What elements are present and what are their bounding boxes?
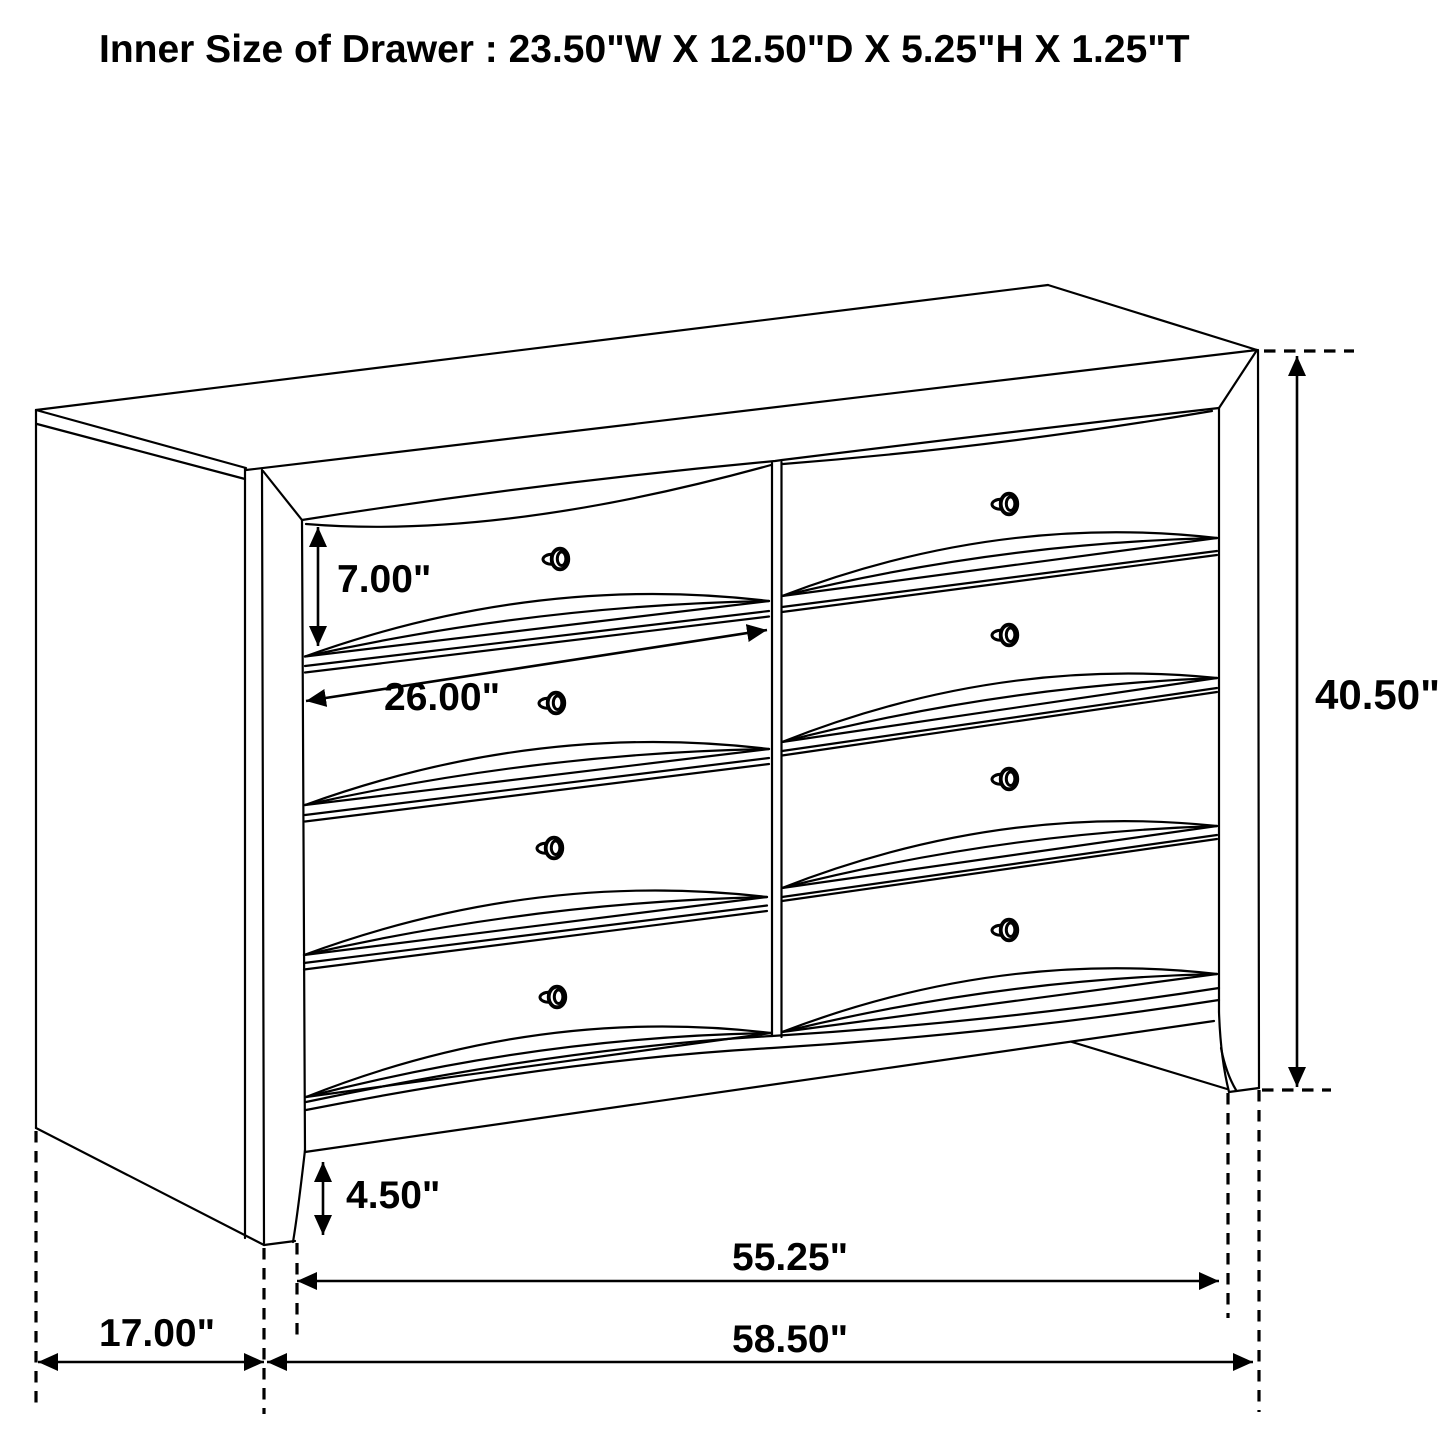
svg-text:17.00": 17.00" (99, 1312, 215, 1355)
svg-text:26.00": 26.00" (384, 676, 500, 719)
svg-text:58.50": 58.50" (732, 1318, 848, 1361)
svg-text:7.00": 7.00" (337, 558, 431, 601)
svg-text:55.25": 55.25" (732, 1236, 848, 1279)
svg-text:40.50": 40.50" (1315, 671, 1440, 718)
svg-text:Inner Size of Drawer : 23.50"W: Inner Size of Drawer : 23.50"W X 12.50"D… (99, 28, 1190, 71)
svg-text:4.50": 4.50" (346, 1174, 440, 1217)
